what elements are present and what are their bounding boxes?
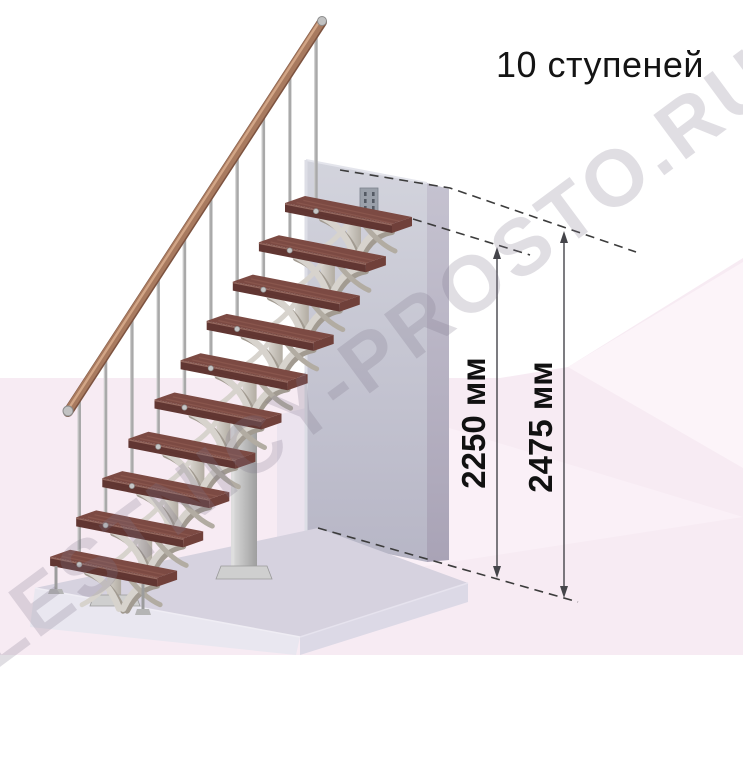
dimension-label-total-steps-height: 2250 мм — [456, 335, 492, 511]
page-title: 10 ступеней — [450, 44, 743, 88]
staircase-scene-svg — [0, 0, 743, 655]
dimension-label-total-height: 2475 мм — [523, 339, 559, 515]
illustration-canvas: LESTNICY-PROSTO.RU 2250 мм 2475 мм 10 ст… — [0, 0, 743, 655]
